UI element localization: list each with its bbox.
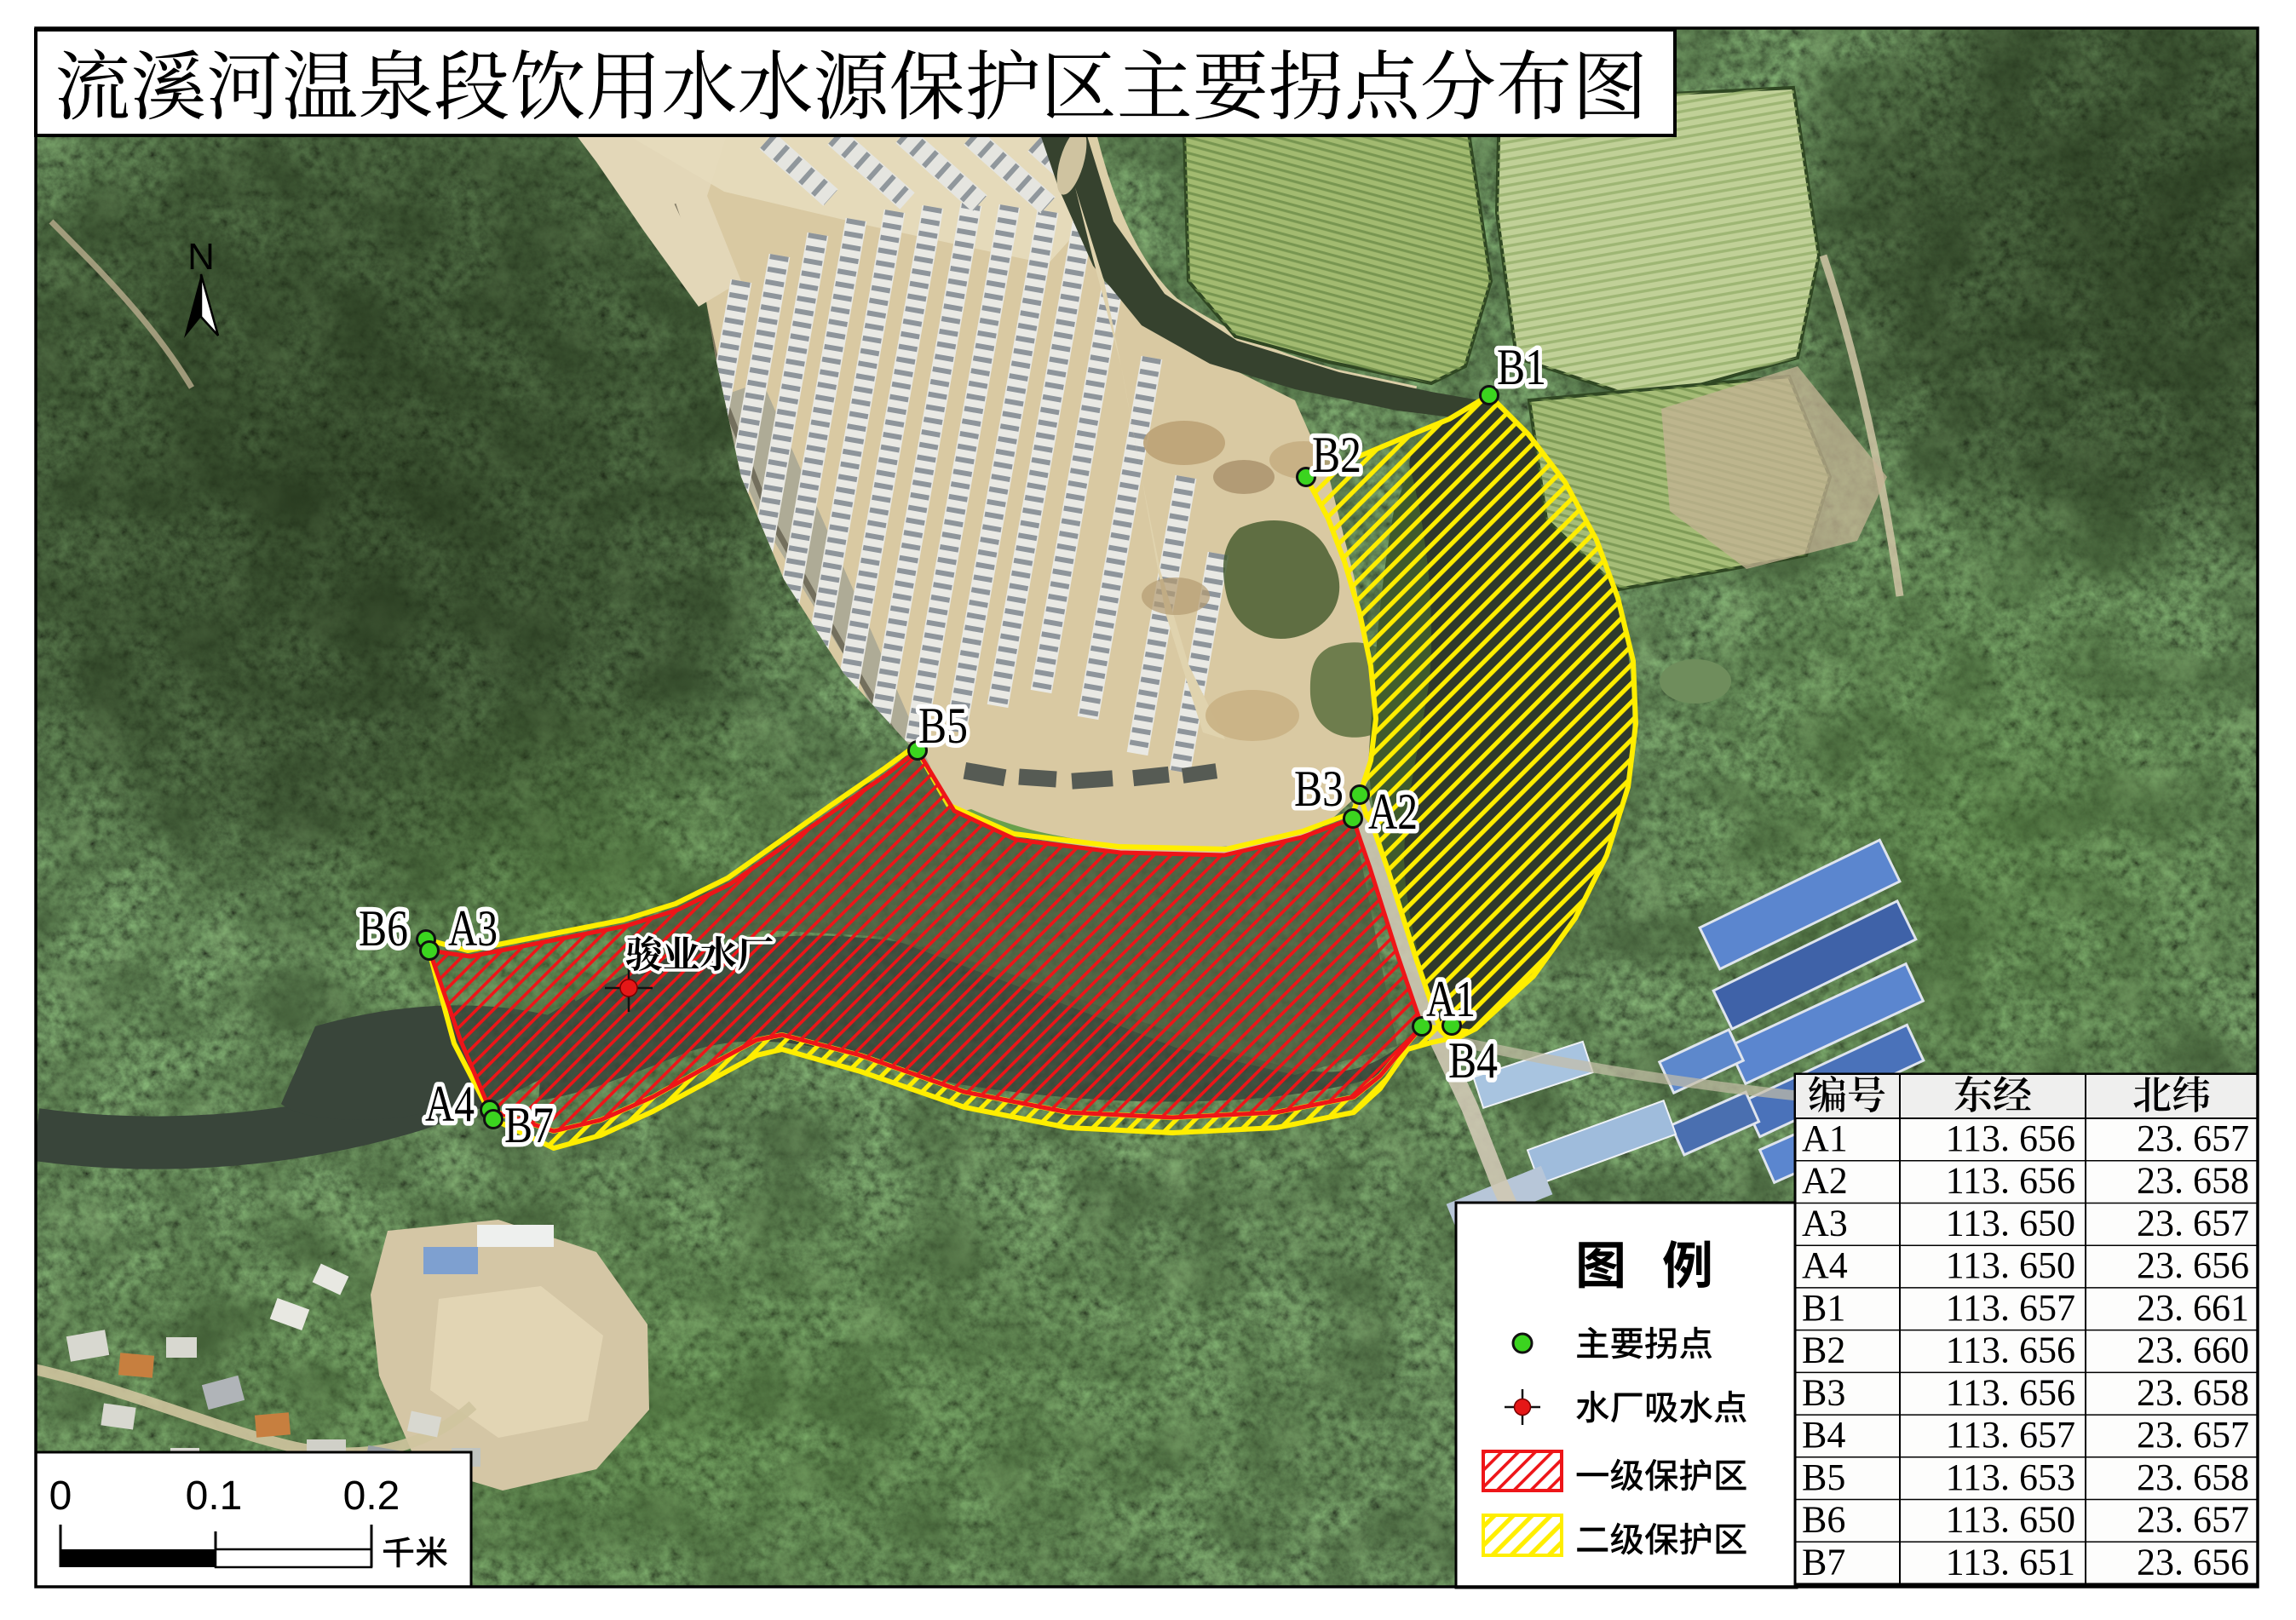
svg-text:113. 651: 113. 651 bbox=[1946, 1541, 2075, 1583]
svg-text:23. 658: 23. 658 bbox=[2137, 1456, 2249, 1498]
svg-text:113. 656: 113. 656 bbox=[1946, 1117, 2075, 1159]
svg-text:A4: A4 bbox=[1802, 1244, 1848, 1286]
svg-text:B7: B7 bbox=[1802, 1541, 1845, 1583]
svg-text:A1: A1 bbox=[1426, 971, 1476, 1027]
svg-text:23. 656: 23. 656 bbox=[2137, 1244, 2249, 1286]
svg-text:23. 658: 23. 658 bbox=[2137, 1160, 2249, 1202]
svg-text:23. 660: 23. 660 bbox=[2137, 1330, 2249, 1371]
svg-text:A1: A1 bbox=[1802, 1117, 1848, 1159]
svg-text:A2: A2 bbox=[1368, 784, 1418, 840]
svg-text:B1: B1 bbox=[1802, 1287, 1845, 1329]
svg-text:N: N bbox=[187, 236, 215, 278]
svg-text:B6: B6 bbox=[1802, 1499, 1845, 1541]
svg-text:113. 657: 113. 657 bbox=[1946, 1287, 2075, 1329]
svg-text:B5: B5 bbox=[918, 698, 968, 754]
svg-text:A3: A3 bbox=[1802, 1203, 1848, 1244]
svg-text:113. 650: 113. 650 bbox=[1946, 1499, 2075, 1541]
svg-text:23. 657: 23. 657 bbox=[2137, 1414, 2249, 1456]
svg-text:113. 653: 113. 653 bbox=[1946, 1456, 2075, 1498]
svg-text:113. 650: 113. 650 bbox=[1946, 1244, 2075, 1286]
svg-text:B4: B4 bbox=[1802, 1414, 1845, 1456]
svg-text:0.2: 0.2 bbox=[343, 1474, 400, 1519]
svg-text:23. 656: 23. 656 bbox=[2137, 1541, 2249, 1583]
svg-text:23. 657: 23. 657 bbox=[2137, 1117, 2249, 1159]
svg-text:23. 657: 23. 657 bbox=[2137, 1499, 2249, 1541]
svg-text:23. 661: 23. 661 bbox=[2137, 1287, 2249, 1329]
svg-text:B3: B3 bbox=[1294, 761, 1344, 817]
svg-text:B7: B7 bbox=[504, 1097, 554, 1153]
svg-text:113. 656: 113. 656 bbox=[1946, 1330, 2075, 1371]
svg-text:B2: B2 bbox=[1312, 427, 1361, 483]
svg-text:B4: B4 bbox=[1448, 1032, 1498, 1089]
svg-text:113. 657: 113. 657 bbox=[1946, 1414, 2075, 1456]
svg-text:0.1: 0.1 bbox=[186, 1474, 243, 1519]
svg-text:B2: B2 bbox=[1802, 1330, 1845, 1371]
svg-text:0: 0 bbox=[49, 1474, 72, 1519]
svg-text:B3: B3 bbox=[1802, 1371, 1845, 1413]
svg-text:A3: A3 bbox=[448, 900, 498, 956]
svg-text:23. 658: 23. 658 bbox=[2137, 1371, 2249, 1413]
svg-text:113. 650: 113. 650 bbox=[1946, 1203, 2075, 1244]
svg-text:23. 657: 23. 657 bbox=[2137, 1203, 2249, 1244]
svg-text:A2: A2 bbox=[1802, 1160, 1848, 1202]
svg-text:A4: A4 bbox=[425, 1076, 475, 1132]
svg-text:113. 656: 113. 656 bbox=[1946, 1160, 2075, 1202]
svg-text:113. 656: 113. 656 bbox=[1946, 1371, 2075, 1413]
svg-text:B1: B1 bbox=[1497, 339, 1546, 395]
svg-text:B5: B5 bbox=[1802, 1456, 1845, 1498]
svg-text:B6: B6 bbox=[359, 900, 408, 956]
